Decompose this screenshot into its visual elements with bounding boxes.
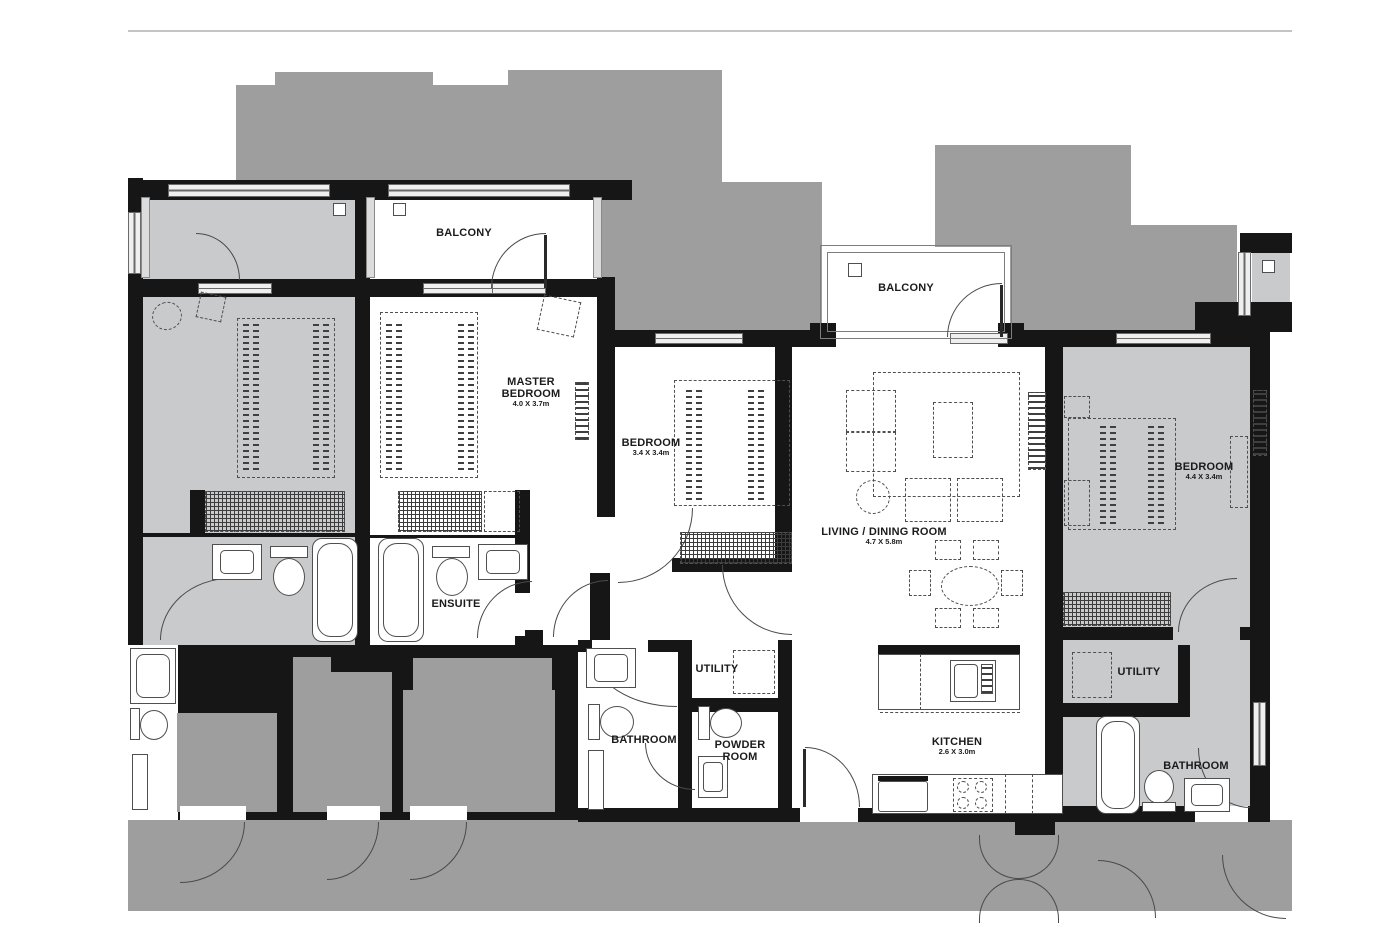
kitchen-counter-divider bbox=[1005, 774, 1006, 814]
wardrobe bbox=[398, 491, 482, 532]
room-dims: 4.4 X 3.4m bbox=[1175, 473, 1234, 481]
hob-ring bbox=[957, 781, 969, 793]
fixture-toilet-tank bbox=[698, 706, 710, 740]
fixture-basin bbox=[594, 654, 628, 682]
room-label-bathroom-right: BATHROOM bbox=[1163, 760, 1229, 772]
room-label-kitchen: KITCHEN 2.6 X 3.0m bbox=[932, 736, 982, 756]
fixture-bathtub-inner bbox=[383, 543, 419, 637]
door-leaf bbox=[1000, 285, 1003, 337]
room-label-utility: UTILITY bbox=[696, 663, 739, 675]
sheet-border bbox=[128, 30, 1292, 32]
fixture-bathtub-inner bbox=[317, 543, 353, 637]
room-name: UTILITY bbox=[696, 663, 739, 675]
context-building-mass bbox=[508, 70, 722, 87]
room-label-living-dining: LIVING / DINING ROOM 4.7 X 5.8m bbox=[821, 526, 947, 546]
furniture-armchair bbox=[957, 478, 1003, 522]
fixture-basin bbox=[220, 550, 254, 574]
wall-segment bbox=[678, 640, 692, 820]
door-opening bbox=[327, 806, 380, 820]
balcony-light-box bbox=[1262, 260, 1275, 273]
room-name: POWDER ROOM bbox=[709, 739, 771, 763]
fixture-toilet-bowl bbox=[1144, 770, 1174, 804]
stair-core bbox=[403, 690, 555, 812]
stair-core bbox=[331, 672, 392, 812]
room-label-utility-right: UTILITY bbox=[1118, 666, 1161, 678]
kitchen-island bbox=[878, 654, 1020, 710]
fixture-drainer bbox=[981, 664, 993, 694]
bed-hatch bbox=[253, 324, 259, 470]
furniture-side-table bbox=[1064, 480, 1090, 526]
window bbox=[388, 184, 570, 197]
room-name: UTILITY bbox=[1118, 666, 1161, 678]
bed-hatch bbox=[696, 386, 702, 500]
bed-hatch bbox=[386, 320, 392, 470]
furniture-dining-chair bbox=[935, 608, 961, 628]
balcony-rail bbox=[141, 197, 150, 278]
bed-hatch bbox=[1148, 424, 1154, 524]
stair-core bbox=[413, 658, 552, 690]
room-name: BATHROOM bbox=[1163, 760, 1229, 772]
wall-segment bbox=[578, 808, 800, 822]
bed-hatch bbox=[468, 320, 474, 470]
kitchen-counter-divider bbox=[1032, 774, 1033, 814]
window bbox=[168, 184, 330, 197]
room-dims: 2.6 X 3.0m bbox=[932, 748, 982, 756]
context-building-mass bbox=[600, 182, 822, 334]
window bbox=[1238, 252, 1251, 316]
wall-segment bbox=[1248, 806, 1270, 822]
wardrobe-dashed bbox=[484, 491, 520, 532]
hob-ring bbox=[957, 797, 969, 809]
fixture-radiator bbox=[588, 750, 604, 810]
fixture-basin bbox=[1191, 784, 1223, 806]
fixture-radiator bbox=[132, 754, 148, 810]
fixture-fridge bbox=[878, 781, 928, 812]
wardrobe bbox=[680, 532, 792, 564]
furniture-dining-chair bbox=[973, 608, 999, 628]
room-name: BALCONY bbox=[436, 227, 492, 239]
door-opening bbox=[180, 806, 246, 820]
bed-hatch bbox=[1110, 424, 1116, 524]
furniture-radiator bbox=[575, 382, 589, 440]
wall-segment bbox=[778, 640, 792, 820]
wardrobe bbox=[1063, 592, 1171, 626]
furniture-armchair bbox=[905, 478, 951, 522]
window bbox=[1116, 333, 1211, 344]
balcony-rail bbox=[593, 197, 602, 278]
bed-hatch bbox=[758, 386, 764, 500]
balcony-light-box bbox=[333, 203, 346, 216]
furniture-radiator bbox=[1253, 390, 1267, 456]
bed-hatch bbox=[748, 386, 754, 500]
fixture-toilet-bowl bbox=[710, 708, 742, 738]
window bbox=[128, 212, 141, 274]
wall-segment bbox=[1178, 645, 1190, 703]
window bbox=[1253, 702, 1266, 766]
balcony-light-box bbox=[393, 203, 406, 216]
door-opening bbox=[410, 806, 467, 820]
furniture-dining-table bbox=[941, 566, 999, 606]
furniture-coffee-table bbox=[933, 402, 973, 458]
bed-hatch bbox=[458, 320, 464, 470]
furniture-side-table bbox=[856, 480, 890, 514]
hob-ring bbox=[975, 781, 987, 793]
room-label-bathroom: BATHROOM bbox=[611, 734, 677, 746]
bed-hatch bbox=[243, 324, 249, 470]
room-label-balcony-middle: BALCONY bbox=[878, 282, 934, 294]
door-leaf bbox=[544, 235, 547, 288]
bed-hatch bbox=[686, 386, 692, 500]
fixture-toilet-bowl bbox=[140, 710, 168, 740]
stair-core bbox=[293, 657, 331, 812]
furniture-radiator bbox=[1028, 392, 1046, 470]
appliance-dashed bbox=[733, 650, 775, 694]
fixture-toilet-tank bbox=[432, 546, 470, 558]
right-unit-room bbox=[1063, 347, 1250, 806]
furniture-chair bbox=[196, 292, 227, 323]
room-name: BALCONY bbox=[878, 282, 934, 294]
bed-hatch bbox=[1100, 424, 1106, 524]
left-unit-balcony bbox=[143, 200, 355, 280]
door-opening bbox=[800, 808, 858, 822]
wall-segment bbox=[1063, 703, 1190, 717]
wall-segment bbox=[597, 277, 615, 517]
fixture-basin-inner bbox=[703, 762, 723, 792]
fixture-toilet-tank bbox=[588, 704, 600, 740]
window bbox=[655, 333, 743, 344]
kitchen-island-edge bbox=[878, 645, 1020, 654]
appliance-dashed bbox=[1072, 652, 1112, 698]
hob-ring bbox=[975, 797, 987, 809]
kitchen-counter-edge bbox=[880, 712, 1020, 713]
furniture-sofa bbox=[846, 432, 896, 472]
wall-segment bbox=[1063, 627, 1173, 640]
context-building-mass bbox=[275, 72, 433, 87]
wardrobe bbox=[205, 491, 345, 532]
fixture-shower-inner bbox=[136, 654, 170, 698]
balcony-light-box bbox=[848, 263, 862, 277]
bed-hatch bbox=[1158, 424, 1164, 524]
fixture-toilet-bowl bbox=[436, 558, 468, 596]
fixture-bathtub-inner bbox=[1101, 721, 1135, 809]
room-label-balcony-left: BALCONY bbox=[436, 227, 492, 239]
furniture-side-table bbox=[1064, 396, 1090, 418]
furniture-bed bbox=[237, 318, 335, 478]
room-name: MASTER BEDROOM bbox=[485, 376, 577, 400]
room-dims: 4.0 X 3.7m bbox=[485, 400, 577, 408]
wall-segment bbox=[648, 640, 678, 652]
stair-core bbox=[177, 713, 277, 812]
fixture-toilet-bowl bbox=[273, 558, 305, 596]
room-label-powder-room: POWDER ROOM bbox=[709, 739, 771, 763]
furniture-chair bbox=[537, 294, 582, 337]
fixture-sink-bowl bbox=[954, 664, 978, 698]
wall-segment bbox=[1240, 233, 1292, 253]
furniture-dining-chair bbox=[1001, 570, 1023, 596]
wall-segment bbox=[1015, 820, 1055, 835]
furniture-dining-chair bbox=[909, 570, 931, 596]
wall-segment bbox=[190, 490, 205, 535]
fixture-toilet-tank bbox=[270, 546, 308, 558]
kitchen-counter-divider bbox=[920, 654, 921, 710]
room-dims: 3.4 X 3.4m bbox=[622, 449, 681, 457]
room-name: ENSUITE bbox=[431, 598, 480, 610]
room-label-bedroom-middle: BEDROOM 3.4 X 3.4m bbox=[622, 437, 681, 457]
fixture-toilet-tank bbox=[130, 708, 140, 740]
wall-segment bbox=[143, 533, 355, 537]
door-leaf bbox=[803, 749, 806, 807]
furniture-dining-chair bbox=[973, 540, 999, 560]
furniture-sofa bbox=[846, 390, 896, 432]
room-label-bedroom-right: BEDROOM 4.4 X 3.4m bbox=[1175, 461, 1234, 481]
wall-segment bbox=[1240, 627, 1255, 640]
bed-hatch bbox=[323, 324, 329, 470]
bed-hatch bbox=[313, 324, 319, 470]
room-name: BATHROOM bbox=[611, 734, 677, 746]
balcony-rail bbox=[366, 197, 375, 278]
room-dims: 4.7 X 5.8m bbox=[821, 538, 947, 546]
fixture-basin bbox=[486, 550, 520, 574]
room-label-ensuite: ENSUITE bbox=[431, 598, 480, 610]
context-building-mass bbox=[236, 85, 722, 185]
room-label-master-bedroom: MASTER BEDROOM 4.0 X 3.7m bbox=[485, 376, 577, 408]
floor-plan: BALCONY BALCONY MASTER BEDROOM 4.0 X 3.7… bbox=[0, 0, 1400, 933]
bed-hatch bbox=[396, 320, 402, 470]
fixture-toilet-tank bbox=[1142, 802, 1176, 812]
wall-segment bbox=[1045, 345, 1063, 820]
